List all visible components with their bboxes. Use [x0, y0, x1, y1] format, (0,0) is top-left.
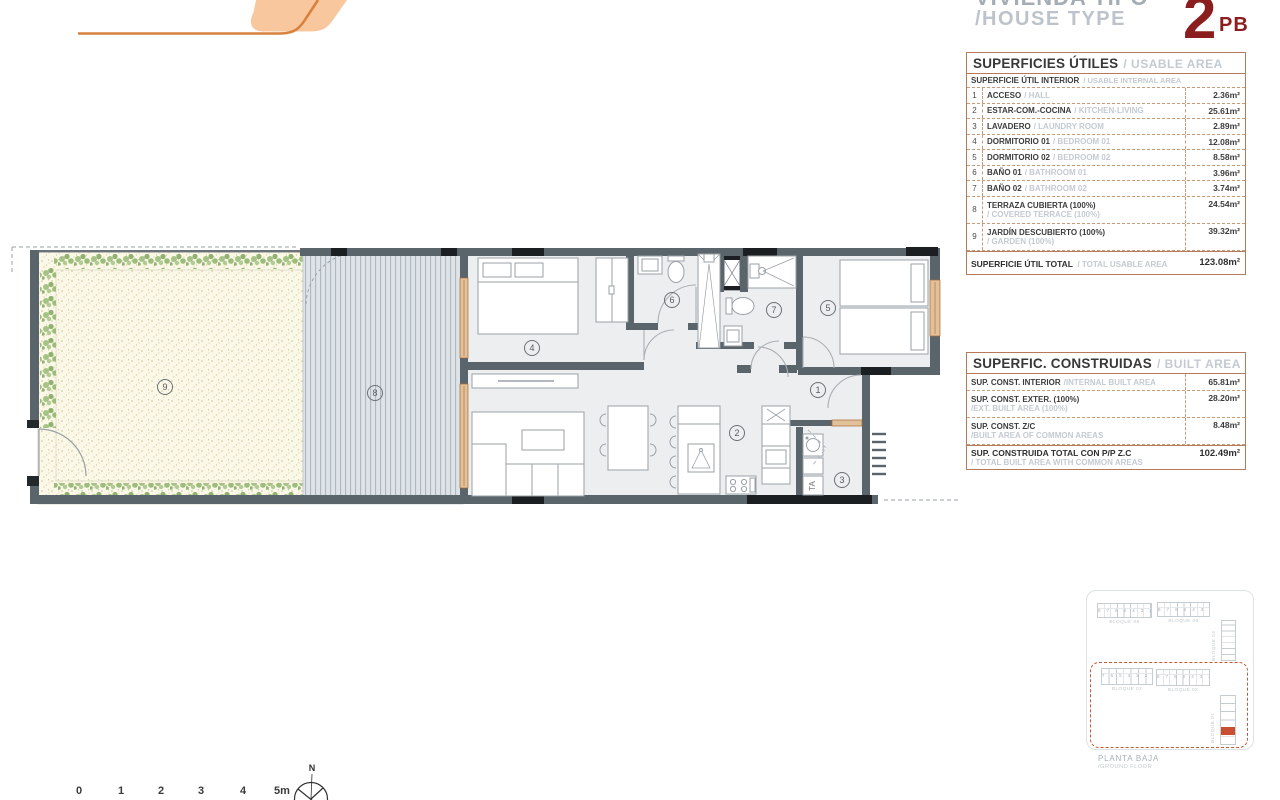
- block-02-strip: 8 7 6 5 4 3 2 1: [1156, 669, 1210, 686]
- garden-area: [27, 250, 304, 504]
- room-name-es: LAVADERO: [987, 122, 1031, 131]
- usable-table-title: SUPERFICIES ÚTILES / USABLE AREA: [967, 53, 1245, 74]
- room-name-en: / COVERED TERRACE (100%): [987, 210, 1100, 219]
- built-total-row: SUP. CONSTRUIDA TOTAL CON P/P Z.C / TOTA…: [967, 445, 1245, 469]
- room-name-en: / LAUNDRY ROOM: [1034, 122, 1104, 131]
- room-name-es: JARDÍN DESCUBIERTO (100%): [987, 228, 1105, 237]
- usable-title-es: SUPERFICIES ÚTILES: [973, 56, 1118, 71]
- table-row: 9 JARDÍN DESCUBIERTO (100%)/ GARDEN (100…: [967, 224, 1245, 251]
- room-name-es: ACCESO: [987, 91, 1021, 100]
- svg-text:2: 2: [734, 428, 739, 438]
- row-area-value: 24.54m²: [1185, 197, 1245, 223]
- row-area-value: 39.32m²: [1185, 224, 1245, 250]
- table-row: 2 ESTAR-COM.-COCINA/ KITCHEN-LIVING 25.6…: [967, 104, 1245, 120]
- room-name-en: / BATHROOM 02: [1025, 184, 1087, 193]
- svg-text:1: 1: [815, 385, 820, 395]
- row-number: 7: [967, 181, 983, 196]
- built-title-en: / BUILT AREA: [1157, 357, 1241, 371]
- table-row: 7 BAÑO 02/ BATHROOM 02 3.74m²: [967, 181, 1245, 197]
- block-03-strip: 7 6 5 4 3 2 1: [1101, 668, 1153, 685]
- built-row-en: /BUILT AREA OF COMMON AREAS: [971, 431, 1103, 440]
- block-05-units: 8 7 6 5 4 3 2 1: [1158, 607, 1209, 612]
- shaft: [724, 256, 740, 290]
- block-06-strip: 8 7 6 5 4 3 2 1: [1097, 603, 1152, 618]
- row-area-value: 2.89m²: [1185, 119, 1245, 134]
- dining-table: [608, 406, 648, 470]
- scale-bar: 0 1 2 3 4 5m: [0, 785, 330, 800]
- entrance-door: [832, 420, 862, 426]
- table-row: 4 DORMITORIO 01/ BEDROOM 01 12.08m²: [967, 135, 1245, 151]
- room-name-en: / BEDROOM 01: [1053, 137, 1110, 146]
- room-name-en: / BATHROOM 01: [1025, 168, 1087, 177]
- block-02-label: BLOQUE 02: [1156, 688, 1210, 693]
- svg-text:6: 6: [669, 295, 674, 305]
- row-number: 3: [967, 119, 983, 134]
- current-unit-highlight: [1221, 727, 1235, 735]
- row-area-value: 8.48m²: [1185, 418, 1245, 444]
- block-04-label: BLOQUE 04: [1212, 621, 1217, 661]
- row-area-value: 12.08m²: [1185, 135, 1245, 150]
- row-area-value: 3.74m²: [1185, 181, 1245, 196]
- hedge-bottom: [54, 483, 303, 496]
- row-number: 6: [967, 166, 983, 181]
- usable-subheader-es: SUPERFICIE ÚTIL INTERIOR: [971, 76, 1079, 85]
- table-row: 6 BAÑO 01/ BATHROOM 01 3.96m²: [967, 166, 1245, 182]
- built-row-en: /INTERNAL BUILT AREA: [1064, 378, 1156, 387]
- usable-table-subheader: SUPERFICIE ÚTIL INTERIOR / USABLE INTERN…: [967, 74, 1245, 88]
- floor-level-label: PLANTA BAJA /GROUND FLOOR: [1098, 754, 1159, 771]
- built-title-es: SUPERFIC. CONSTRUIDAS: [973, 356, 1152, 371]
- room-name-en: / BEDROOM 02: [1053, 153, 1110, 162]
- hedge-left: [40, 266, 56, 428]
- block-03-label: BLOQUE 03: [1101, 687, 1153, 692]
- hedge-top: [54, 254, 303, 269]
- table-row: SUP. CONST. INTERIOR/INTERNAL BUILT AREA…: [967, 374, 1245, 391]
- block-06-units: 8 7 6 5 4 3 2 1: [1098, 608, 1151, 613]
- floor-level-es: PLANTA BAJA: [1098, 754, 1159, 764]
- svg-text:9: 9: [162, 382, 167, 392]
- built-row-en: /EXT. BUILT AREA (100%): [971, 404, 1068, 413]
- row-number: 1: [967, 88, 983, 103]
- row-area-value: 25.61m²: [1185, 104, 1245, 119]
- floor-level-en: /GROUND FLOOR: [1098, 764, 1159, 771]
- table-row: 5 DORMITORIO 02/ BEDROOM 02 8.58m²: [967, 150, 1245, 166]
- usable-area-table: SUPERFICIES ÚTILES / USABLE AREA SUPERFI…: [966, 52, 1246, 275]
- built-table-title: SUPERFIC. CONSTRUIDAS / BUILT AREA: [967, 353, 1245, 374]
- built-total-en: / TOTAL BUILT AREA WITH COMMON AREAS: [971, 458, 1180, 467]
- usable-subheader-en: / USABLE INTERNAL AREA: [1083, 76, 1181, 85]
- compass: N: [283, 761, 341, 800]
- shower: [698, 254, 720, 348]
- house-type-badge: 2 PB: [1183, 0, 1216, 48]
- floor-plan: TA 9 8 4 6 7 5 1 2 3: [10, 238, 960, 528]
- table-row: 8 TERRAZA CUBIERTA (100%)/ COVERED TERRA…: [967, 197, 1245, 224]
- scale-tick: 2: [158, 785, 164, 797]
- usable-title-en: / USABLE AREA: [1123, 57, 1222, 71]
- row-area-value: 3.96m²: [1185, 166, 1245, 181]
- scale-tick: 3: [198, 785, 204, 797]
- svg-text:5: 5: [825, 303, 830, 313]
- scale-tick: 4: [240, 785, 246, 797]
- scale-tick: 1: [118, 785, 124, 797]
- svg-text:7: 7: [771, 305, 776, 315]
- usable-total-es: SUPERFICIE ÚTIL TOTAL: [971, 259, 1073, 269]
- brand-logo: [0, 0, 360, 52]
- row-number: 9: [967, 224, 983, 250]
- room-name-en: / KITCHEN-LIVING: [1074, 106, 1143, 115]
- row-area-value: 8.58m²: [1185, 150, 1245, 165]
- block-05-label: BLOQUE 05: [1157, 619, 1210, 624]
- row-number: 2: [967, 104, 983, 119]
- water-heater-label: TA: [808, 481, 817, 491]
- row-number: 8: [967, 197, 983, 223]
- built-total-es: SUP. CONSTRUIDA TOTAL CON P/P Z.C: [971, 448, 1180, 458]
- house-type-title-en: /HOUSE TYPE: [975, 9, 1149, 30]
- house-type-suffix: PB: [1219, 14, 1249, 37]
- room-name-es: DORMITORIO 02: [987, 153, 1050, 162]
- block-06-label: BLOQUE 06: [1097, 620, 1152, 625]
- garden-left-wall: [30, 250, 39, 422]
- table-row: 3 LAVADERO/ LAUNDRY ROOM 2.89m²: [967, 119, 1245, 135]
- coffee-table: [522, 430, 564, 450]
- header: VIVIENDA TIPO /HOUSE TYPE: [975, 0, 1149, 30]
- built-area-table: SUPERFIC. CONSTRUIDAS / BUILT AREA SUP. …: [966, 352, 1246, 470]
- built-row-es: SUP. CONST. INTERIOR: [971, 378, 1061, 387]
- row-area-value: 65.81m²: [1185, 374, 1245, 390]
- table-row: SUP. CONST. Z/C/BUILT AREA OF COMMON ARE…: [967, 418, 1245, 445]
- north-label: N: [309, 763, 316, 773]
- block-01-label: BLOQUE 01: [1211, 698, 1216, 743]
- room-name-en: / GARDEN (100%): [987, 237, 1054, 246]
- svg-text:8: 8: [372, 388, 377, 398]
- room-name-es: TERRAZA CUBIERTA (100%): [987, 201, 1096, 210]
- built-row-es: SUP. CONST. EXTER. (100%): [971, 395, 1079, 404]
- built-row-es: SUP. CONST. Z/C: [971, 422, 1035, 431]
- built-total-value: 102.49m²: [1184, 448, 1245, 459]
- usable-total-en: / TOTAL USABLE AREA: [1077, 260, 1167, 269]
- house-type-number: 2: [1183, 0, 1216, 48]
- block-04-strip: [1221, 620, 1236, 661]
- room-name-es: BAÑO 01: [987, 168, 1022, 177]
- block-05-strip: 8 7 6 5 4 3 2 1: [1157, 602, 1210, 617]
- usable-total-value: 123.08m²: [1184, 257, 1245, 268]
- row-number: 5: [967, 150, 983, 165]
- table-row: SUP. CONST. EXTER. (100%)/EXT. BUILT ARE…: [967, 391, 1245, 418]
- room-name-en: / HALL: [1024, 91, 1050, 100]
- block-01-strip: [1220, 695, 1236, 745]
- room-name-es: DORMITORIO 01: [987, 137, 1050, 146]
- row-number: 4: [967, 135, 983, 150]
- usable-total-row: SUPERFICIE ÚTIL TOTAL / TOTAL USABLE ARE…: [967, 251, 1245, 274]
- row-area-value: 28.20m²: [1185, 391, 1245, 417]
- svg-text:4: 4: [529, 343, 534, 353]
- block-02-units: 8 7 6 5 4 3 2 1: [1157, 674, 1209, 679]
- room-name-es: BAÑO 02: [987, 184, 1022, 193]
- row-area-value: 2.36m²: [1185, 88, 1245, 103]
- plan-sheet-page: VIVIENDA TIPO /HOUSE TYPE 2 PB SUPERFICI…: [0, 0, 1280, 800]
- block-03-units: 7 6 5 4 3 2 1: [1102, 673, 1152, 678]
- room-name-es: ESTAR-COM.-COCINA: [987, 106, 1071, 115]
- terrace-area: [303, 252, 463, 504]
- site-map: 8 7 6 5 4 3 2 1 BLOQUE 06 8 7 6 5 4 3 2 …: [1080, 588, 1272, 800]
- table-row: 1 ACCESO/ HALL 2.36m²: [967, 88, 1245, 104]
- scale-tick: 0: [76, 785, 82, 797]
- svg-text:3: 3: [839, 475, 844, 485]
- vent-hatch: [872, 434, 886, 474]
